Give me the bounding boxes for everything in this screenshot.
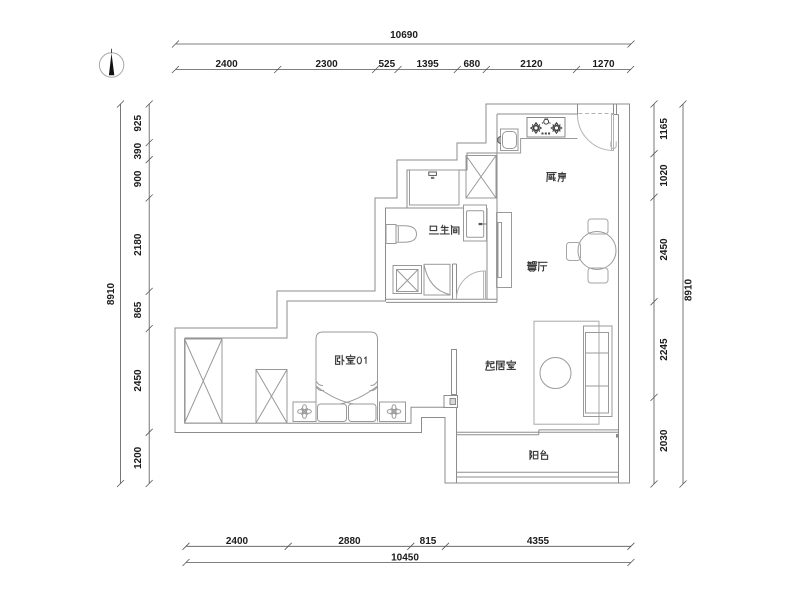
svg-text:8910: 8910: [684, 278, 695, 301]
svg-text:2450: 2450: [133, 369, 144, 392]
svg-text:1020: 1020: [659, 164, 670, 187]
svg-text:1200: 1200: [133, 446, 144, 469]
svg-text:1165: 1165: [659, 118, 670, 140]
svg-text:1270: 1270: [592, 59, 615, 70]
svg-text:10450: 10450: [391, 553, 419, 564]
svg-text:865: 865: [133, 301, 144, 318]
svg-text:2400: 2400: [215, 59, 238, 70]
svg-text:815: 815: [420, 536, 437, 547]
svg-text:2180: 2180: [133, 233, 144, 256]
svg-text:1395: 1395: [416, 59, 439, 70]
svg-text:2245: 2245: [659, 338, 670, 361]
svg-text:925: 925: [133, 115, 144, 132]
svg-text:4355: 4355: [527, 536, 550, 547]
svg-text:10690: 10690: [390, 30, 418, 41]
svg-text:680: 680: [463, 59, 480, 70]
svg-text:2120: 2120: [520, 59, 543, 70]
svg-text:525: 525: [378, 59, 395, 70]
svg-text:390: 390: [133, 142, 144, 159]
svg-text:900: 900: [133, 170, 144, 187]
svg-text:8910: 8910: [106, 282, 117, 305]
svg-text:2030: 2030: [659, 429, 670, 452]
svg-text:2880: 2880: [338, 536, 361, 547]
svg-text:2300: 2300: [315, 59, 338, 70]
svg-text:2450: 2450: [659, 238, 670, 261]
svg-text:2400: 2400: [226, 536, 249, 547]
